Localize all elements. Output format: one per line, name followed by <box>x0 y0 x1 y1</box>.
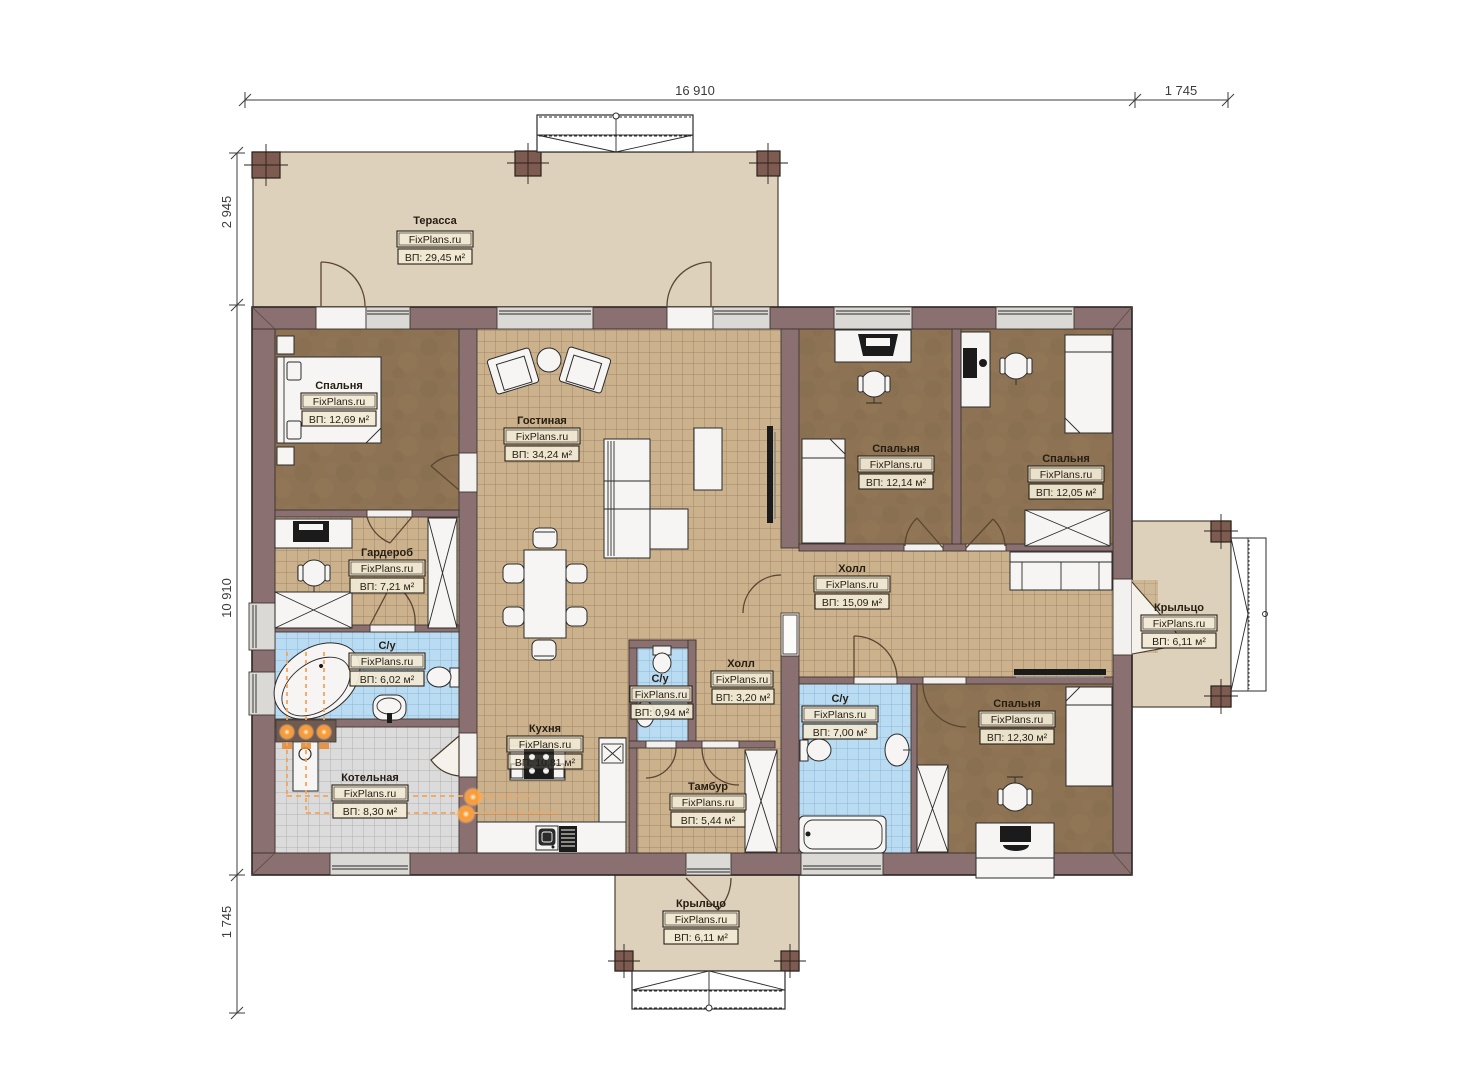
svg-text:ВП: 12,30 м²: ВП: 12,30 м² <box>987 732 1048 744</box>
svg-text:FixPlans.ru: FixPlans.ru <box>991 714 1044 726</box>
svg-text:Спальня: Спальня <box>315 380 363 392</box>
svg-text:ВП: 6,02 м²: ВП: 6,02 м² <box>360 674 415 686</box>
svg-text:Котельная: Котельная <box>341 772 399 784</box>
svg-text:FixPlans.ru: FixPlans.ru <box>675 914 728 926</box>
svg-text:FixPlans.ru: FixPlans.ru <box>682 797 735 809</box>
svg-text:Холл: Холл <box>727 658 755 670</box>
svg-text:Гардероб: Гардероб <box>361 547 413 559</box>
svg-text:2 945: 2 945 <box>219 196 234 229</box>
svg-text:Крыльцо: Крыльцо <box>1154 602 1204 614</box>
svg-text:FixPlans.ru: FixPlans.ru <box>361 563 414 575</box>
svg-text:ВП: 8,30 м²: ВП: 8,30 м² <box>343 806 398 818</box>
svg-text:FixPlans.ru: FixPlans.ru <box>344 788 397 800</box>
svg-text:10 910: 10 910 <box>219 578 234 618</box>
svg-text:Терасса: Терасса <box>413 215 457 227</box>
svg-text:ВП: 12,69 м²: ВП: 12,69 м² <box>309 414 370 426</box>
svg-text:ВП: 3,20 м²: ВП: 3,20 м² <box>716 692 771 704</box>
svg-text:FixPlans.ru: FixPlans.ru <box>826 579 879 591</box>
svg-text:ВП: 0,94 м²: ВП: 0,94 м² <box>635 707 690 719</box>
svg-text:С/у: С/у <box>651 673 669 685</box>
svg-text:ВП: 34,24 м²: ВП: 34,24 м² <box>512 449 573 461</box>
svg-text:FixPlans.ru: FixPlans.ru <box>516 431 569 443</box>
svg-text:Кухня: Кухня <box>529 723 561 735</box>
svg-text:Спальня: Спальня <box>872 443 920 455</box>
svg-text:ВП: 29,45 м²: ВП: 29,45 м² <box>405 252 466 264</box>
svg-text:С/у: С/у <box>831 693 849 705</box>
svg-text:ВП: 6,11 м²: ВП: 6,11 м² <box>1152 636 1206 648</box>
svg-text:С/у: С/у <box>378 640 396 652</box>
svg-text:ВП: 12,14 м²: ВП: 12,14 м² <box>866 477 927 489</box>
svg-text:FixPlans.ru: FixPlans.ru <box>1040 469 1093 481</box>
svg-text:1 745: 1 745 <box>1165 83 1198 98</box>
svg-text:FixPlans.ru: FixPlans.ru <box>870 459 923 471</box>
svg-text:Спальня: Спальня <box>993 698 1041 710</box>
svg-text:ВП: 15,09 м²: ВП: 15,09 м² <box>822 597 883 609</box>
svg-text:1 745: 1 745 <box>219 906 234 939</box>
svg-text:ВП: 5,44 м²: ВП: 5,44 м² <box>681 815 736 827</box>
svg-text:FixPlans.ru: FixPlans.ru <box>361 656 414 668</box>
svg-text:ВП: 6,11 м²: ВП: 6,11 м² <box>674 932 728 944</box>
svg-text:Холл: Холл <box>838 563 866 575</box>
svg-text:Крыльцо: Крыльцо <box>676 898 726 910</box>
svg-text:Спальня: Спальня <box>1042 453 1090 465</box>
svg-text:FixPlans.ru: FixPlans.ru <box>814 709 867 721</box>
svg-text:ВП: 12,05 м²: ВП: 12,05 м² <box>1036 487 1097 499</box>
svg-text:Гостиная: Гостиная <box>517 415 567 427</box>
svg-text:FixPlans.ru: FixPlans.ru <box>1153 618 1206 630</box>
svg-text:FixPlans.ru: FixPlans.ru <box>313 396 366 408</box>
svg-text:FixPlans.ru: FixPlans.ru <box>635 689 688 701</box>
svg-text:Тамбур: Тамбур <box>688 781 728 793</box>
svg-text:FixPlans.ru: FixPlans.ru <box>716 674 769 686</box>
svg-text:ВП: 7,21 м²: ВП: 7,21 м² <box>360 581 415 593</box>
svg-text:FixPlans.ru: FixPlans.ru <box>409 234 462 246</box>
svg-text:ВП: 7,00 м²: ВП: 7,00 м² <box>813 727 868 739</box>
svg-text:16 910: 16 910 <box>675 83 715 98</box>
